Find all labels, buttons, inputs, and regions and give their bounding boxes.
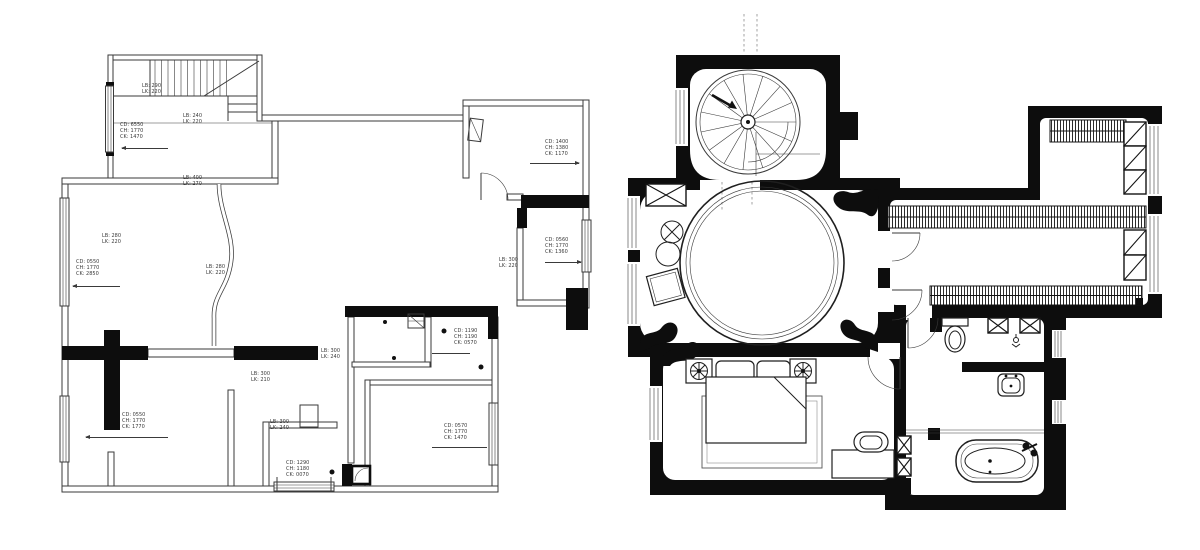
windows — [60, 86, 591, 491]
shower-unit-symbol — [352, 466, 370, 484]
chair — [854, 432, 888, 452]
left-floor-plan — [60, 55, 591, 492]
curved-partition — [214, 184, 232, 346]
door-swing — [481, 173, 508, 200]
walls — [62, 55, 589, 492]
bathtub — [956, 440, 1038, 482]
wash-basin — [998, 374, 1024, 396]
right-floor-plan — [624, 14, 1162, 510]
floor-plans-drawing — [0, 0, 1200, 550]
window-symbol — [468, 118, 484, 141]
partition-wall — [962, 362, 1044, 372]
floor-plan-canvas: LB: 290LK: 220LB: 240LK: 220CD: 6550CH: … — [0, 0, 1200, 550]
desk — [832, 450, 894, 478]
staircase — [113, 60, 259, 121]
